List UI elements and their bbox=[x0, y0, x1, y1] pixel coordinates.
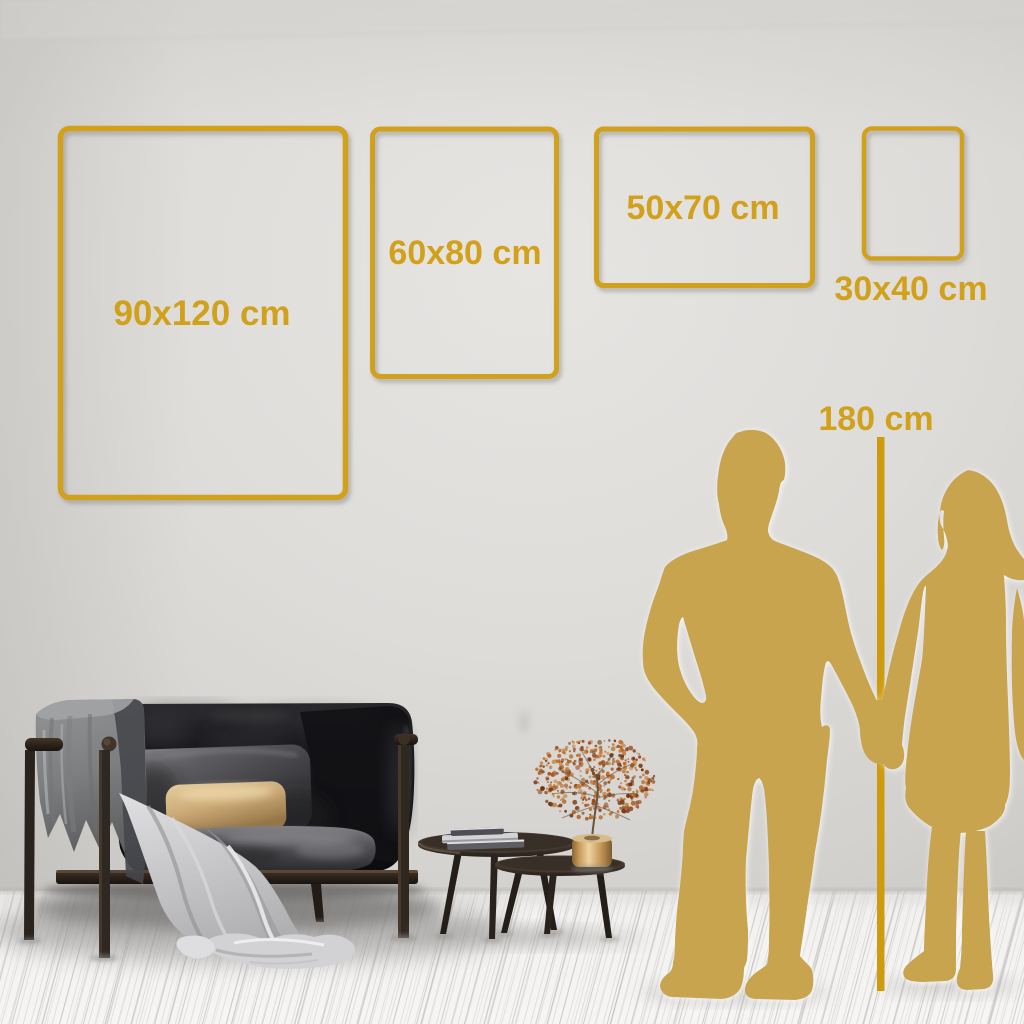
svg-text:50x70 cm: 50x70 cm bbox=[626, 189, 779, 227]
svg-text:90x120 cm: 90x120 cm bbox=[113, 294, 290, 333]
svg-text:30x40 cm: 30x40 cm bbox=[834, 270, 987, 308]
svg-text:180 cm: 180 cm bbox=[818, 400, 933, 438]
svg-text:60x80 cm: 60x80 cm bbox=[388, 234, 541, 272]
